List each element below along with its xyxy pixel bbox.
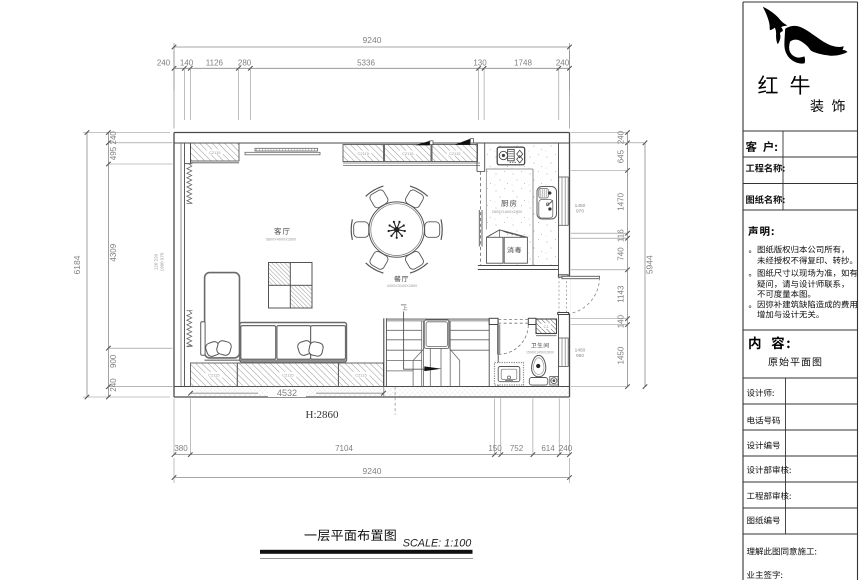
svg-text:240: 240 (559, 444, 573, 453)
svg-text:5800X4000X2800: 5800X4000X2800 (266, 238, 296, 242)
svg-text:150: 150 (488, 444, 502, 453)
svg-text:900: 900 (109, 354, 118, 368)
svg-text:240: 240 (157, 58, 171, 67)
svg-text:1500X1450X2800: 1500X1450X2800 (526, 351, 554, 355)
svg-text:H:2860: H:2860 (306, 409, 340, 421)
svg-text:1450: 1450 (575, 203, 586, 209)
svg-text:240: 240 (617, 130, 626, 144)
svg-text:C2115: C2115 (449, 151, 461, 156)
svg-text:380: 380 (174, 444, 188, 453)
svg-text:1143: 1143 (617, 285, 626, 303)
svg-text:116: 116 (617, 229, 626, 242)
svg-text:240: 240 (556, 58, 570, 67)
svg-text:C2115: C2115 (209, 150, 221, 155)
svg-text:645: 645 (617, 149, 626, 163)
svg-text:130: 130 (473, 58, 487, 67)
svg-text:120 220: 120 220 (154, 253, 159, 270)
svg-text:C2115: C2115 (358, 151, 370, 156)
svg-text:C2115: C2115 (355, 373, 367, 378)
svg-text:C1: C1 (544, 324, 550, 329)
svg-text:140: 140 (180, 58, 194, 67)
svg-text:140: 140 (617, 314, 626, 328)
svg-text:240: 240 (109, 378, 118, 392)
svg-text:C2115: C2115 (282, 373, 294, 378)
svg-text:9240: 9240 (363, 466, 382, 476)
svg-text:4300X3100X2800: 4300X3100X2800 (387, 284, 417, 288)
svg-text:1748: 1748 (514, 58, 532, 67)
svg-text:5944: 5944 (645, 255, 655, 274)
svg-text:495: 495 (109, 146, 118, 160)
svg-text:1126: 1126 (206, 58, 224, 67)
svg-text:9240: 9240 (363, 35, 382, 45)
svg-text:4532: 4532 (277, 388, 297, 398)
svg-text:1900 970: 1900 970 (160, 252, 165, 271)
svg-text:752: 752 (510, 444, 524, 453)
svg-text:614: 614 (541, 444, 555, 453)
svg-text:7104: 7104 (335, 444, 353, 453)
svg-text:6184: 6184 (72, 255, 82, 274)
svg-text:740: 740 (617, 247, 626, 261)
svg-text:2800X1600X2800: 2800X1600X2800 (492, 210, 522, 214)
svg-text:SCALE: 1:100: SCALE: 1:100 (403, 538, 471, 550)
svg-text:1450: 1450 (575, 348, 586, 354)
svg-text:240: 240 (109, 131, 118, 145)
svg-text:1470: 1470 (617, 192, 626, 210)
svg-text:C2115: C2115 (402, 151, 414, 156)
svg-text:1450: 1450 (617, 346, 626, 364)
svg-text:970: 970 (576, 209, 584, 215)
svg-text:950: 950 (576, 353, 584, 359)
svg-text:4309: 4309 (109, 243, 118, 261)
svg-text:C2115: C2115 (208, 373, 220, 378)
svg-text:280: 280 (238, 58, 252, 67)
svg-text:5336: 5336 (357, 58, 375, 67)
